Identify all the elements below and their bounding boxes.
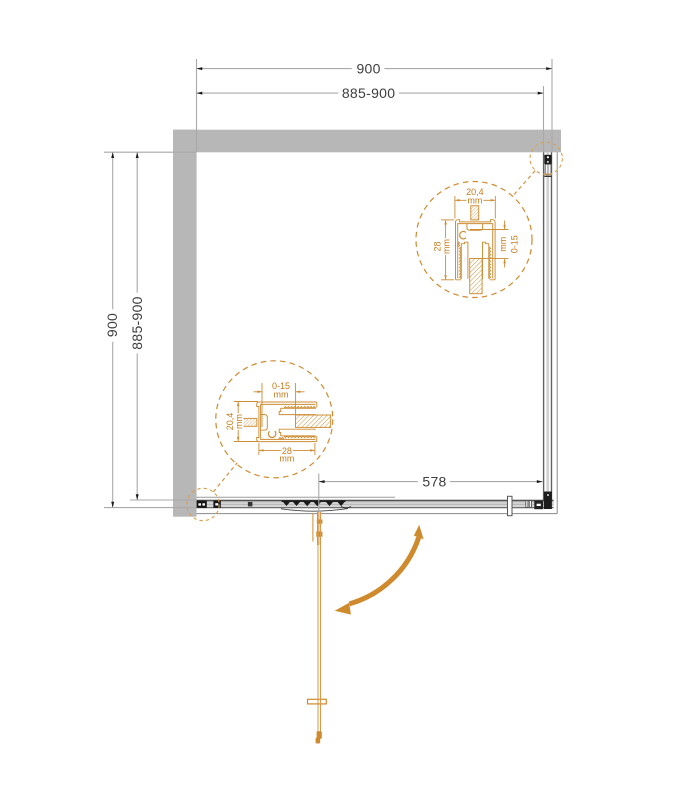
svg-text:mm: mm: [234, 414, 244, 429]
svg-text:mm: mm: [498, 237, 508, 252]
svg-text:900: 900: [104, 313, 120, 337]
svg-text:mm: mm: [467, 196, 482, 206]
svg-text:885-900: 885-900: [129, 296, 145, 349]
svg-text:mm: mm: [279, 453, 294, 463]
svg-text:mm: mm: [441, 239, 451, 254]
svg-text:900: 900: [356, 60, 380, 76]
svg-text:578: 578: [422, 473, 446, 489]
svg-text:mm: mm: [274, 390, 289, 400]
svg-text:0-15: 0-15: [510, 235, 520, 253]
svg-text:885-900: 885-900: [342, 85, 395, 101]
